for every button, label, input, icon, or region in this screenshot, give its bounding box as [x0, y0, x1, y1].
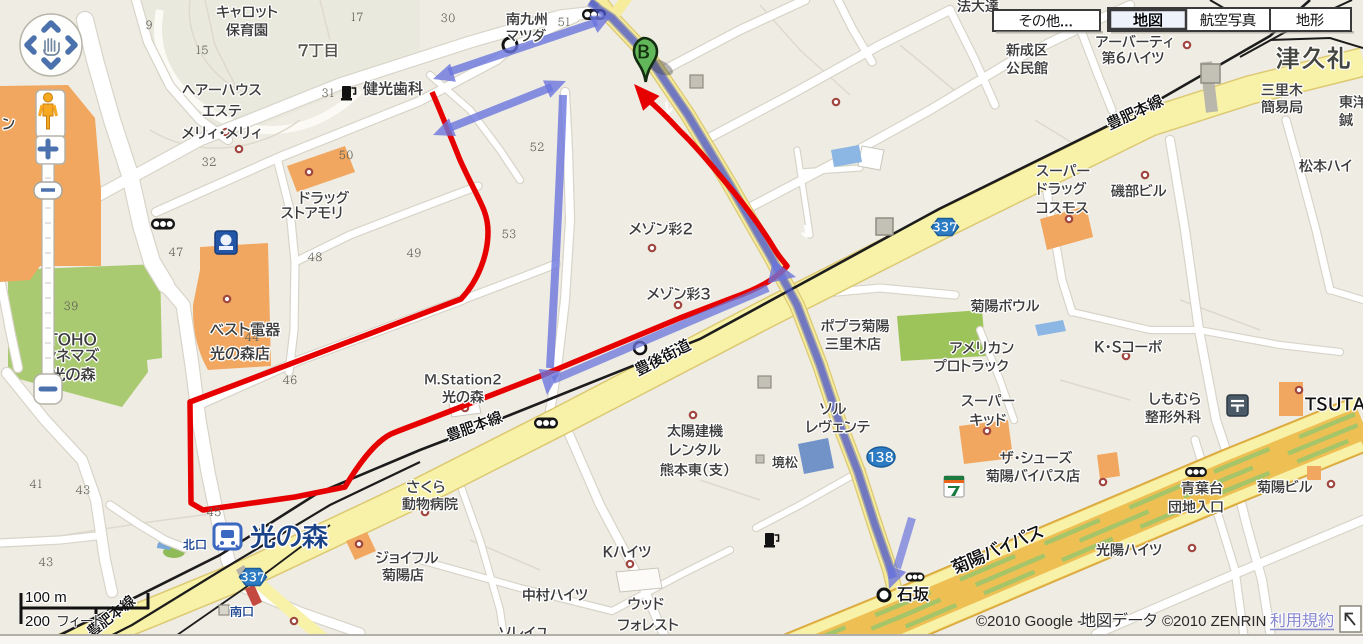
svg-text:©2010 Google -: ©2010 Google -	[976, 613, 1082, 630]
svg-text:©2010 ZENRIN -: ©2010 ZENRIN -	[1162, 613, 1276, 630]
svg-text:100 m: 100 m	[25, 589, 67, 606]
svg-text:200: 200	[25, 613, 50, 630]
